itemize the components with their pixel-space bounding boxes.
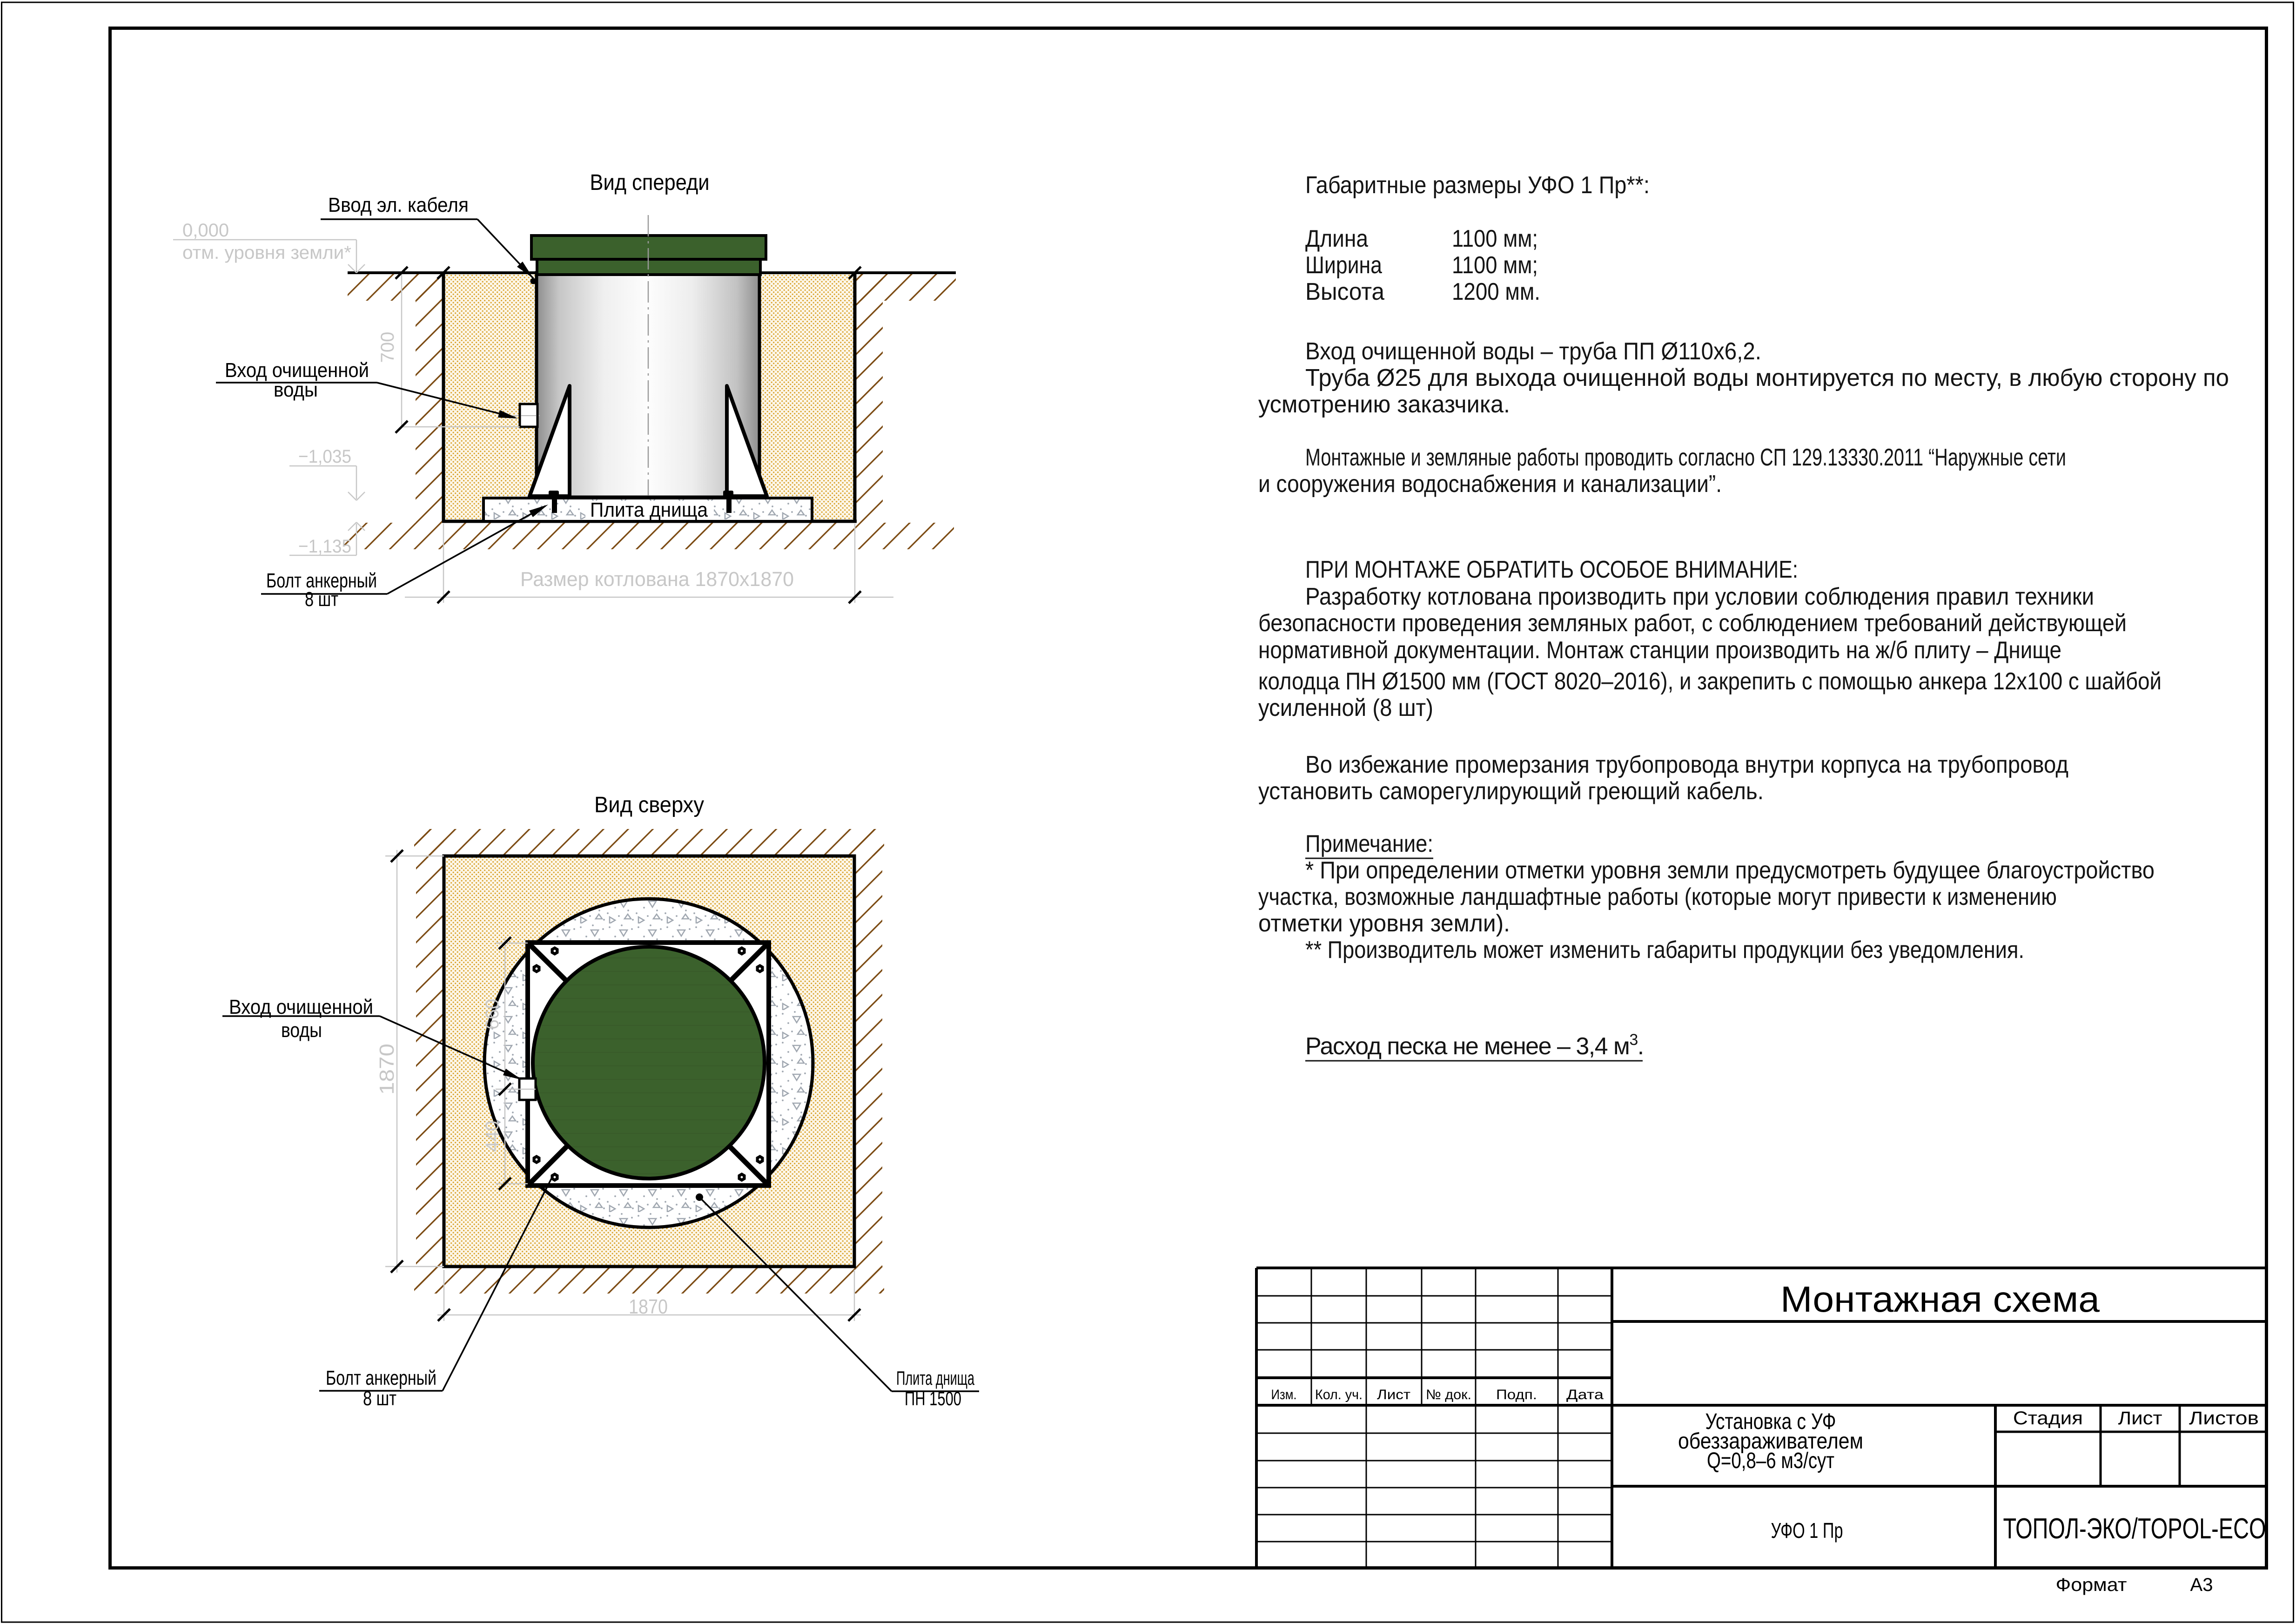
svg-text:и сооружения водоснабжения и к: и сооружения водоснабжения и канализации… [1258,471,1722,498]
svg-text:безопасности проведения землян: безопасности проведения земляных работ, … [1258,610,2127,637]
svg-text:Кол. уч.: Кол. уч. [1315,1387,1363,1402]
svg-text:Во избежание промерзания трубо: Во избежание промерзания трубопровода вн… [1305,751,2068,778]
svg-text:воды: воды [281,1019,322,1042]
svg-text:Длина: Длина [1305,225,1368,252]
svg-text:** Производитель может изменит: ** Производитель может изменить габариты… [1305,937,2024,964]
svg-text:Монтажные и земляные работы пр: Монтажные и земляные работы проводить со… [1305,444,2066,471]
svg-text:1200 мм.: 1200 мм. [1452,278,1540,305]
svg-text:Формат: Формат [2056,1575,2127,1595]
svg-text:0,000: 0,000 [182,220,229,241]
svg-text:Примечание:: Примечание: [1305,830,1433,857]
svg-text:Ширина: Ширина [1305,252,1382,279]
svg-text:* При определении отметки уров: * При определении отметки уровня земли п… [1305,857,2155,884]
svg-text:Монтажная схема: Монтажная схема [1780,1279,2100,1320]
svg-text:700: 700 [377,332,398,363]
svg-text:Лист: Лист [1377,1387,1410,1402]
svg-text:Габаритные размеры УФО 1 Пр**:: Габаритные размеры УФО 1 Пр**: [1305,172,1650,199]
svg-text:8 шт: 8 шт [305,588,338,611]
svg-text:колодца ПН Ø1500 мм (ГОСТ 8020: колодца ПН Ø1500 мм (ГОСТ 8020–2016), и … [1258,668,2162,695]
svg-text:Расход песка не менее – 3,4 м3: Расход песка не менее – 3,4 м3. [1305,1031,1644,1060]
svg-text:Плита днища: Плита днища [590,499,708,521]
svg-text:усмотрению заказчика.: усмотрению заказчика. [1258,391,1510,418]
svg-text:Размер котлована 1870х1870: Размер котлована 1870х1870 [520,568,794,591]
svg-text:отметки уровня земли).: отметки уровня земли). [1258,910,1510,937]
svg-text:Лист: Лист [2118,1408,2162,1429]
svg-text:УФО 1 Пр: УФО 1 Пр [1771,1518,1843,1543]
svg-text:660: 660 [482,999,503,1030]
svg-text:Q=0,8–6 м3/сут: Q=0,8–6 м3/сут [1707,1449,1834,1473]
svg-text:Разработку котлована производи: Разработку котлована производить при усл… [1305,583,2094,610]
svg-text:Труба Ø25 для выхода очищенной: Труба Ø25 для выхода очищенной воды монт… [1305,364,2229,391]
svg-text:Стадия: Стадия [2013,1408,2083,1429]
svg-text:−1,135: −1,135 [298,536,351,557]
svg-text:Подп.: Подп. [1496,1387,1537,1402]
svg-text:№ док.: № док. [1426,1387,1471,1402]
svg-text:Плита днища: Плита днища [896,1367,974,1389]
svg-text:Ввод эл. кабеля: Ввод эл. кабеля [328,194,469,216]
svg-text:усиленной (8 шт): усиленной (8 шт) [1258,694,1433,721]
svg-text:1870: 1870 [629,1295,668,1318]
svg-text:Вид спереди: Вид спереди [590,170,710,195]
svg-text:участка, возможные ландшафтные: участка, возможные ландшафтные работы (к… [1258,883,2057,910]
svg-text:нормативной документации. Монт: нормативной документации. Монтаж станции… [1258,637,2061,664]
svg-text:440: 440 [482,1121,503,1152]
svg-text:1100 мм;: 1100 мм; [1452,225,1538,252]
svg-text:Болт анкерный: Болт анкерный [326,1367,436,1389]
svg-text:Вход очищенной воды – труба ПП: Вход очищенной воды – труба ПП Ø110х6,2. [1305,338,1761,365]
svg-text:1100 мм;: 1100 мм; [1452,252,1538,279]
svg-text:Высота: Высота [1305,278,1384,305]
svg-text:ТОПОЛ-ЭКО/TOPOL-ECO: ТОПОЛ-ЭКО/TOPOL-ECO [2003,1513,2266,1545]
svg-text:ПРИ МОНТАЖЕ ОБРАТИТЬ ОСОБОЕ ВН: ПРИ МОНТАЖЕ ОБРАТИТЬ ОСОБОЕ ВНИМАНИЕ: [1305,556,1798,583]
svg-text:Листов: Листов [2189,1408,2259,1429]
svg-text:Изм.: Изм. [1271,1387,1297,1402]
svg-text:А3: А3 [2190,1575,2213,1595]
svg-text:Вид сверху: Вид сверху [594,793,704,817]
svg-text:установить саморегулирующий гр: установить саморегулирующий греющий кабе… [1258,778,1764,805]
svg-text:Вход очищенной: Вход очищенной [229,996,373,1018]
svg-text:1870: 1870 [376,1044,398,1095]
svg-text:отм. уровня земли*: отм. уровня земли* [182,243,351,263]
svg-text:−1,035: −1,035 [298,446,351,467]
svg-text:Дата: Дата [1566,1387,1604,1402]
